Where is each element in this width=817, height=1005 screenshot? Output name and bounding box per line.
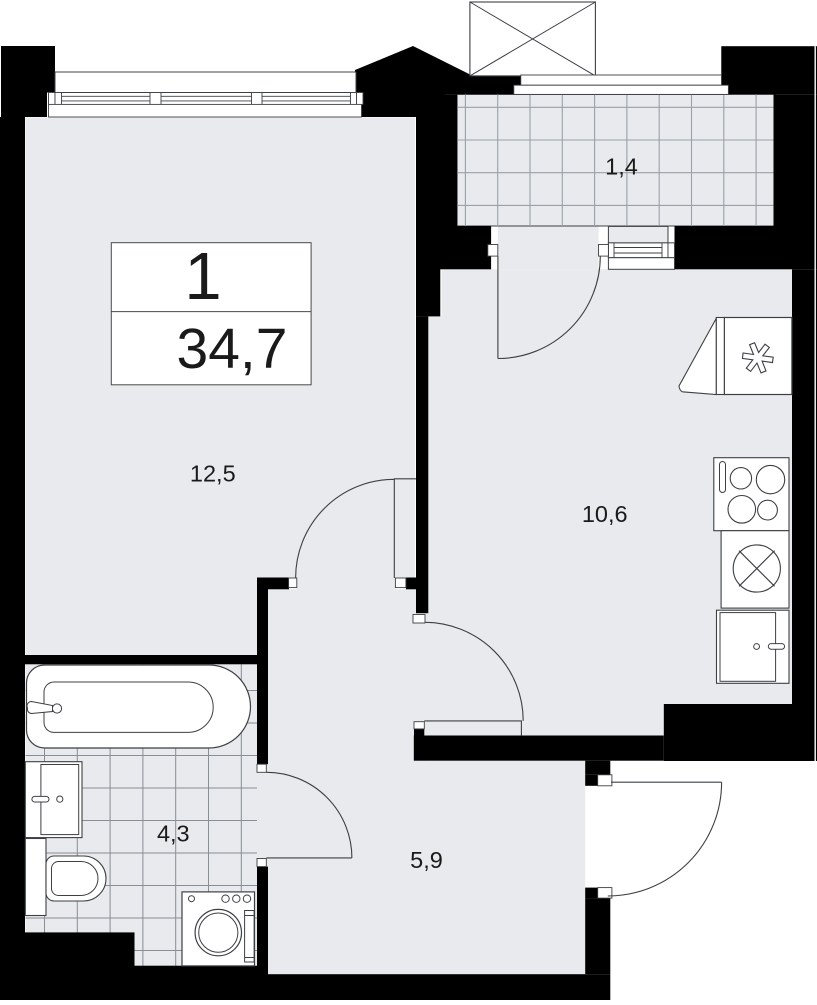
svg-text:4,3: 4,3 bbox=[157, 821, 190, 847]
svg-text:10,6: 10,6 bbox=[582, 501, 628, 527]
svg-text:1: 1 bbox=[184, 239, 221, 314]
svg-text:5,9: 5,9 bbox=[410, 847, 443, 873]
svg-text:34,7: 34,7 bbox=[177, 317, 288, 381]
svg-text:1,4: 1,4 bbox=[605, 153, 638, 179]
svg-text:12,5: 12,5 bbox=[190, 461, 236, 487]
